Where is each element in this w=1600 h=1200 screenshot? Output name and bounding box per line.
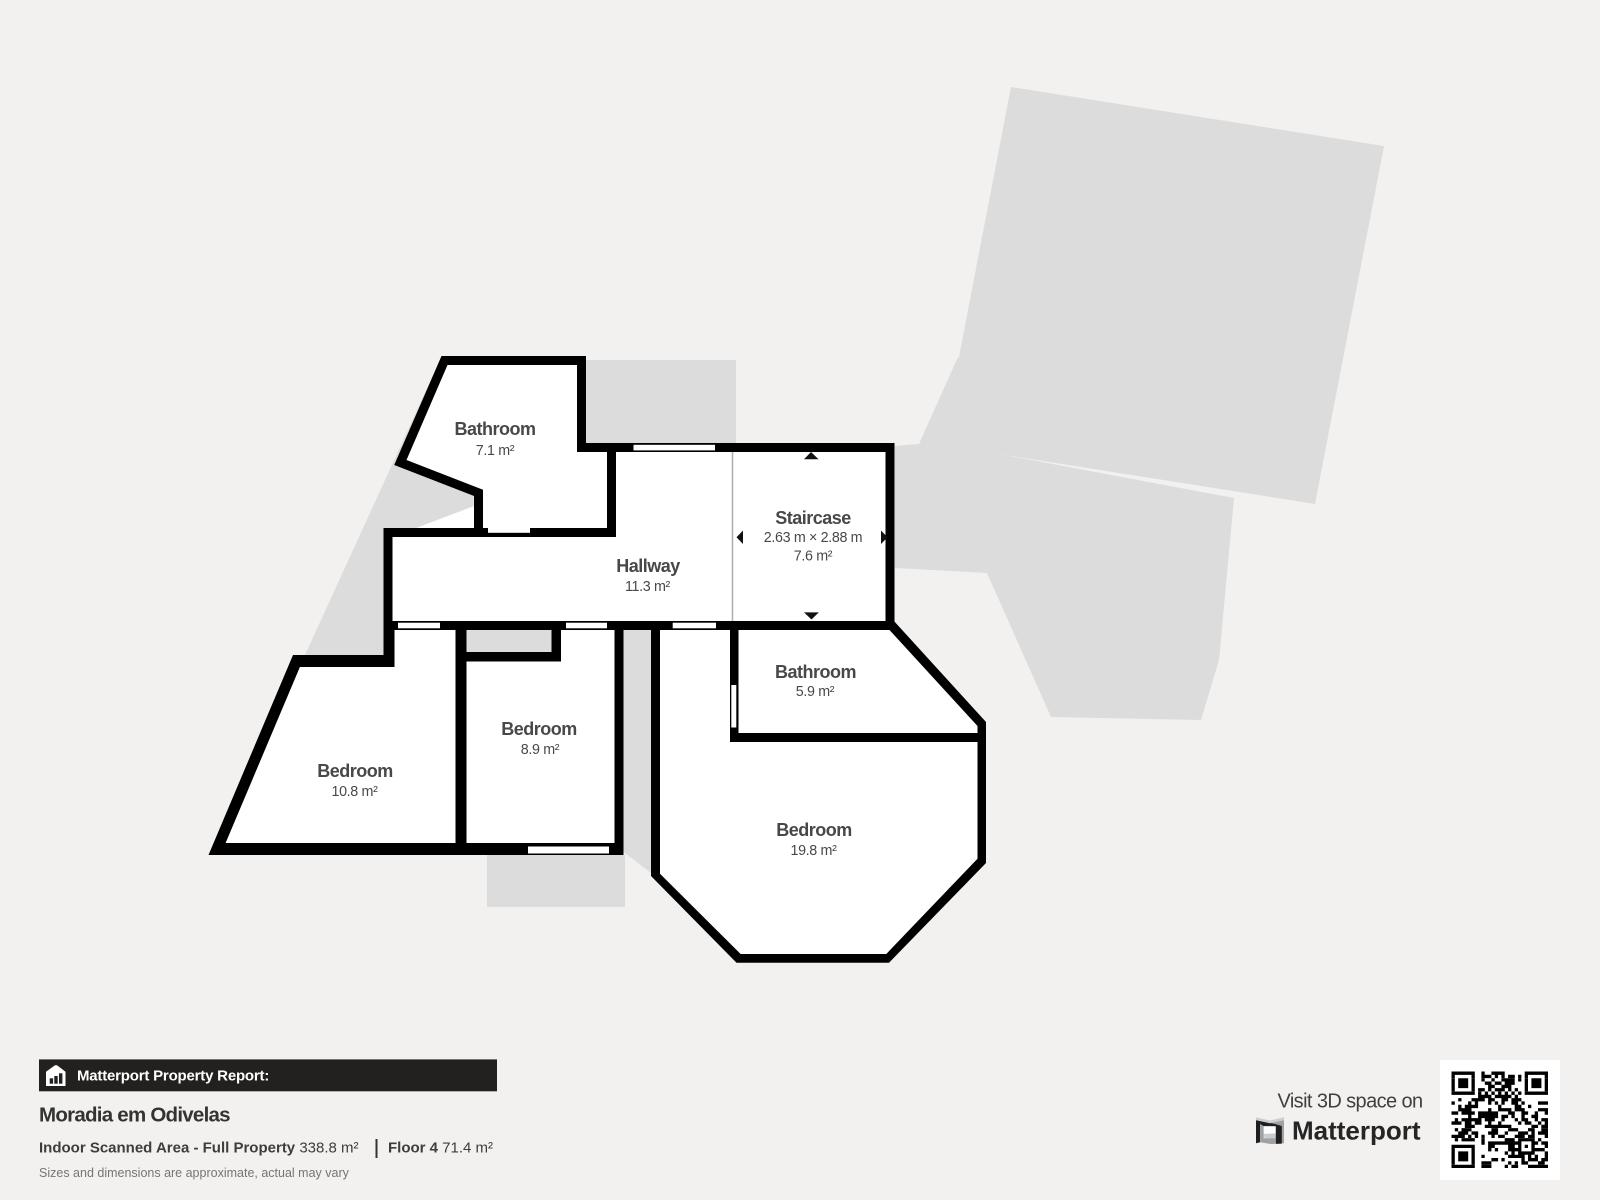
svg-text:2.63 m × 2.88 m: 2.63 m × 2.88 m (764, 530, 862, 546)
svg-text:5.9 m²: 5.9 m² (796, 684, 835, 700)
svg-text:11.3 m²: 11.3 m² (625, 579, 671, 595)
svg-text:Sizes and dimensions are appro: Sizes and dimensions are approximate, ac… (39, 1166, 350, 1180)
svg-text:Hallway: Hallway (616, 556, 680, 576)
svg-text:Bedroom: Bedroom (501, 719, 577, 739)
svg-text:Matterport Property Report:: Matterport Property Report: (77, 1067, 269, 1084)
svg-text:Indoor Scanned Area - Full Pro: Indoor Scanned Area - Full Property 338.… (39, 1140, 359, 1157)
svg-text:7.1 m²: 7.1 m² (476, 443, 515, 459)
svg-text:Bedroom: Bedroom (317, 761, 393, 781)
svg-text:10.8 m²: 10.8 m² (331, 784, 378, 800)
svg-text:8.9 m²: 8.9 m² (521, 742, 560, 758)
svg-text:Matterport: Matterport (1292, 1116, 1421, 1146)
svg-text:7.6 m²: 7.6 m² (794, 549, 833, 565)
svg-text:Bathroom: Bathroom (455, 419, 536, 439)
svg-text:Visit 3D space on: Visit 3D space on (1277, 1091, 1422, 1113)
svg-text:19.8 m²: 19.8 m² (790, 843, 837, 859)
svg-text:Moradia em Odivelas: Moradia em Odivelas (39, 1104, 230, 1127)
svg-text:Staircase: Staircase (775, 508, 851, 528)
svg-text:Bedroom: Bedroom (776, 820, 852, 840)
svg-text:Floor 4 71.4 m²: Floor 4 71.4 m² (388, 1140, 493, 1157)
svg-text:Bathroom: Bathroom (775, 662, 856, 682)
